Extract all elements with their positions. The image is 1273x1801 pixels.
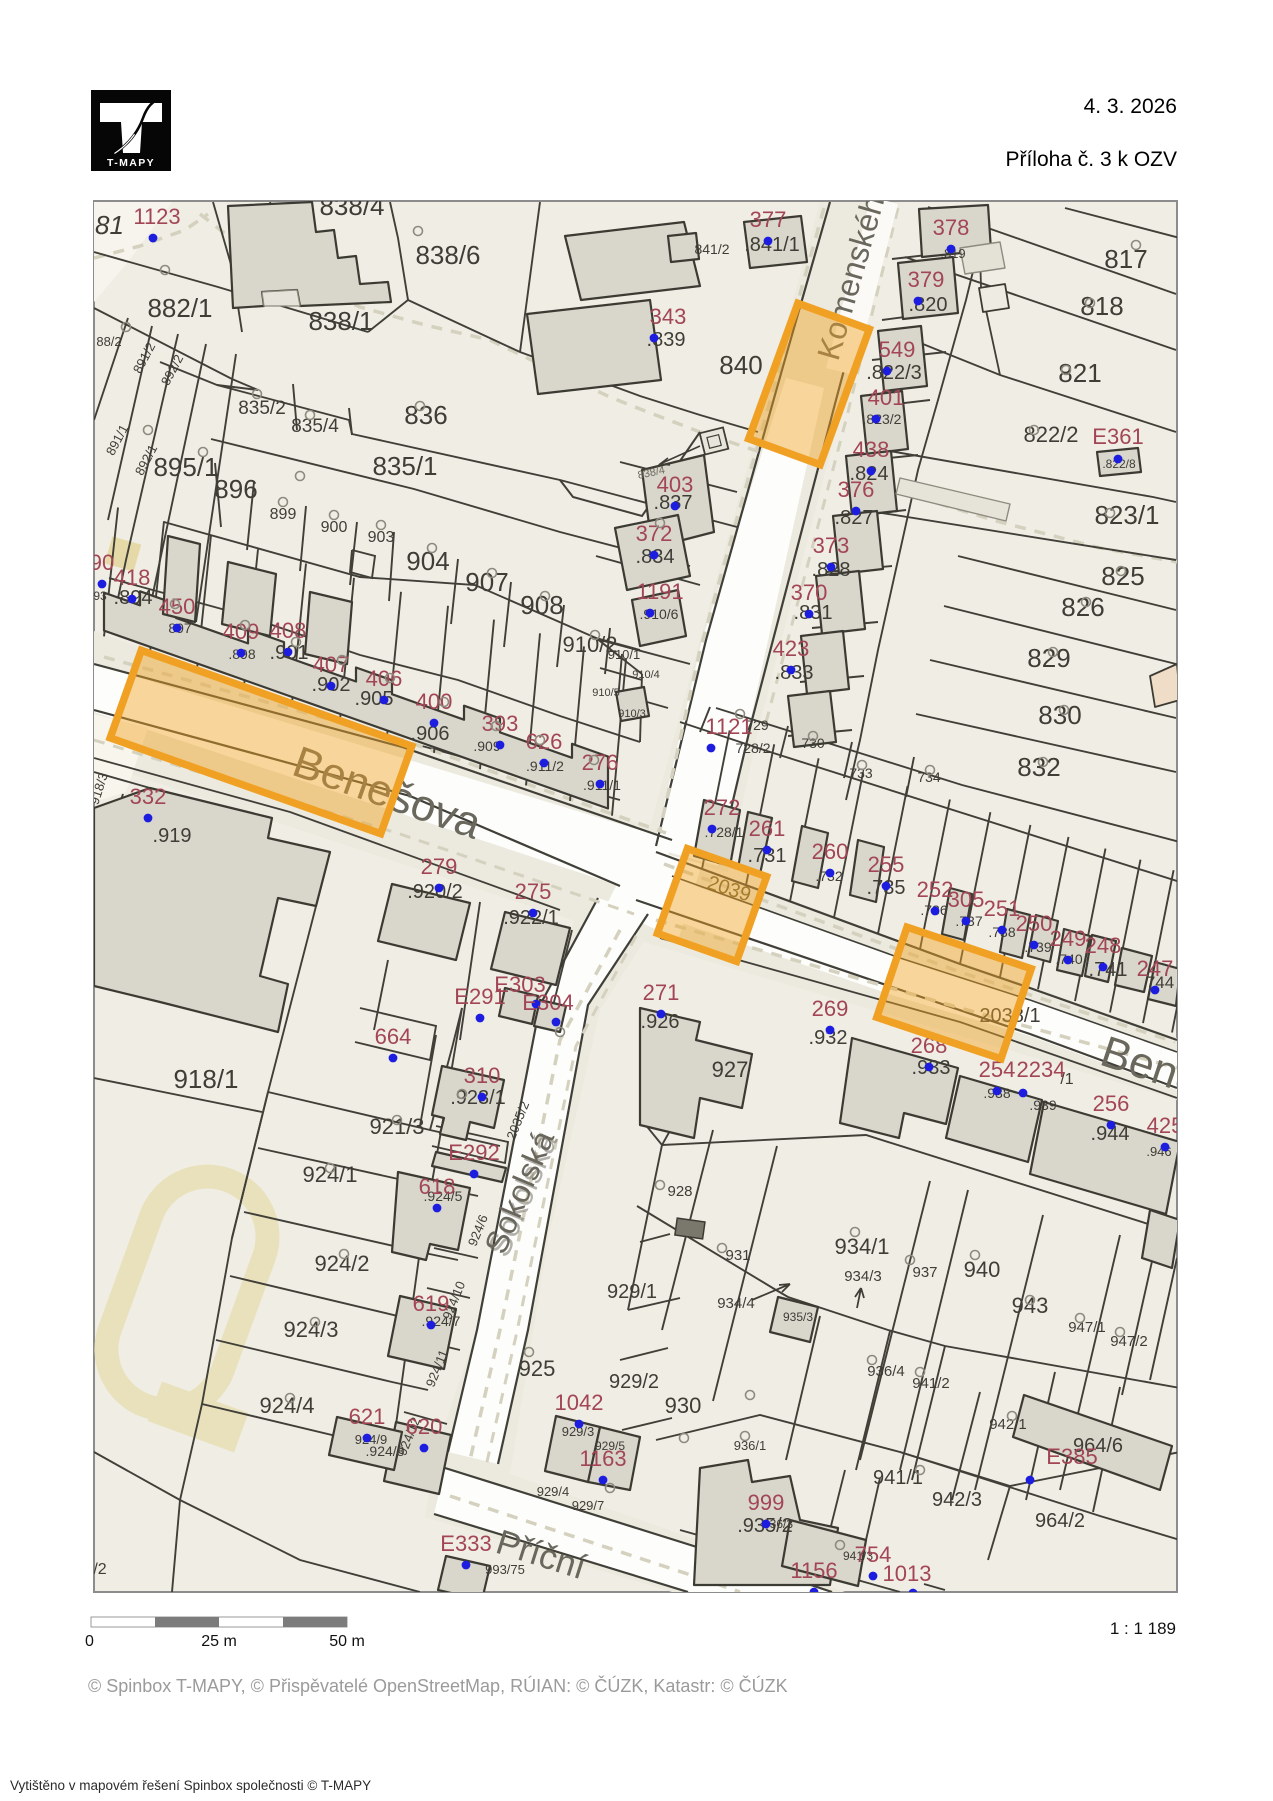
- svg-text:1121: 1121: [705, 714, 752, 739]
- svg-text:942/3: 942/3: [932, 1489, 982, 1511]
- svg-text:255: 255: [868, 852, 905, 877]
- svg-text:279: 279: [421, 854, 458, 879]
- svg-text:© Spinbox T-MAPY, © Přispěvate: © Spinbox T-MAPY, © Přispěvatelé OpenStr…: [88, 1675, 788, 1696]
- svg-text:.820: .820: [909, 294, 948, 316]
- svg-text:E385: E385: [1046, 1444, 1097, 1469]
- svg-text:408: 408: [270, 618, 307, 643]
- svg-text:276: 276: [582, 750, 619, 775]
- svg-text:840: 840: [719, 350, 762, 380]
- svg-text:250: 250: [1016, 911, 1053, 936]
- svg-text:619: 619: [413, 1291, 450, 1316]
- svg-text:1191: 1191: [636, 579, 683, 604]
- svg-text:248: 248: [1085, 933, 1122, 958]
- svg-text:924/4: 924/4: [259, 1393, 314, 1418]
- svg-text:Příloha č. 3 k OZV: Příloha č. 3 k OZV: [1005, 148, 1177, 171]
- svg-text:823/1: 823/1: [1094, 500, 1159, 530]
- svg-text:947/2: 947/2: [1110, 1333, 1148, 1350]
- svg-text:1013: 1013: [883, 1561, 932, 1586]
- svg-text:.741: .741: [1089, 959, 1128, 981]
- svg-text:88/2: 88/2: [96, 334, 121, 349]
- svg-text:927: 927: [712, 1057, 749, 1082]
- svg-text:.920/2: .920/2: [407, 881, 463, 903]
- svg-text:821: 821: [1058, 358, 1101, 388]
- svg-text:838/6: 838/6: [415, 240, 480, 270]
- svg-text:406: 406: [366, 666, 403, 691]
- svg-text:423: 423: [773, 636, 810, 661]
- svg-text:.910/6: .910/6: [640, 606, 679, 622]
- svg-text:275: 275: [515, 879, 552, 904]
- svg-text:.822/3: .822/3: [866, 362, 922, 384]
- svg-text:929/7: 929/7: [572, 1498, 605, 1513]
- svg-text:935/3: 935/3: [783, 1310, 813, 1324]
- svg-text:249: 249: [1050, 926, 1087, 951]
- svg-text:T-MAPY: T-MAPY: [107, 157, 155, 169]
- svg-text:910/4: 910/4: [632, 669, 660, 681]
- svg-text:830: 830: [1038, 700, 1081, 730]
- svg-text:1156: 1156: [790, 1558, 837, 1583]
- svg-text:734: 734: [917, 769, 941, 785]
- svg-text:947/1: 947/1: [1068, 1319, 1106, 1336]
- svg-text:373: 373: [813, 533, 850, 558]
- svg-text:940: 940: [964, 1257, 1001, 1282]
- svg-text:401: 401: [868, 385, 905, 410]
- svg-text:.906: .906: [411, 723, 450, 745]
- svg-text:Vytištěno v mapovém řešení Spi: Vytištěno v mapovém řešení Spinbox spole…: [10, 1778, 371, 1793]
- svg-text:379: 379: [908, 267, 945, 292]
- svg-text:924/2: 924/2: [314, 1251, 369, 1276]
- svg-text:908: 908: [520, 590, 563, 620]
- svg-text:621: 621: [349, 1404, 386, 1429]
- svg-text:.939: .939: [1029, 1097, 1056, 1113]
- svg-text:1 : 1 189: 1 : 1 189: [1110, 1619, 1176, 1638]
- svg-text:835/1: 835/1: [372, 451, 437, 481]
- svg-text:.919: .919: [153, 825, 192, 847]
- svg-text:.823/2: .823/2: [863, 411, 902, 427]
- svg-text:910/3: 910/3: [618, 708, 646, 720]
- svg-text:835/4: 835/4: [291, 416, 339, 437]
- svg-text:81: 81: [95, 210, 124, 240]
- svg-text:730: 730: [801, 735, 825, 751]
- svg-text:E333: E333: [440, 1531, 491, 1556]
- svg-text:261: 261: [749, 816, 786, 841]
- svg-text:25 m: 25 m: [201, 1633, 237, 1650]
- svg-text:929/2: 929/2: [609, 1371, 659, 1393]
- svg-text:999: 999: [748, 1490, 785, 1515]
- svg-text:343: 343: [650, 304, 687, 329]
- svg-text:370: 370: [791, 580, 828, 605]
- svg-text:817: 817: [1104, 244, 1147, 274]
- svg-text:/2: /2: [93, 1561, 106, 1578]
- svg-text:50 m: 50 m: [329, 1633, 365, 1650]
- svg-text:450: 450: [159, 594, 196, 619]
- svg-text:438: 438: [853, 437, 890, 462]
- svg-text:377: 377: [750, 207, 787, 232]
- svg-text:549: 549: [879, 337, 916, 362]
- svg-text:900: 900: [321, 519, 348, 536]
- svg-text:835/2: 835/2: [238, 398, 286, 419]
- svg-text:931: 931: [725, 1247, 750, 1264]
- svg-text:829: 829: [1027, 643, 1070, 673]
- svg-text:882/1: 882/1: [147, 293, 212, 323]
- svg-text:376: 376: [838, 477, 875, 502]
- svg-text:832: 832: [1017, 752, 1060, 782]
- svg-text:332: 332: [130, 784, 167, 809]
- svg-text:272: 272: [704, 795, 741, 820]
- svg-text:1163: 1163: [579, 1446, 626, 1471]
- svg-text:271: 271: [643, 980, 680, 1005]
- svg-text:836: 836: [404, 400, 447, 430]
- svg-text:0: 0: [85, 1633, 94, 1650]
- svg-text:E304: E304: [522, 990, 573, 1015]
- svg-text:400: 400: [416, 689, 453, 714]
- svg-text:928: 928: [667, 1183, 692, 1200]
- svg-text:620: 620: [406, 1414, 443, 1439]
- svg-text:934/4: 934/4: [717, 1295, 755, 1312]
- svg-text:896: 896: [214, 474, 257, 504]
- svg-text:838/1: 838/1: [308, 306, 373, 336]
- svg-text:418: 418: [114, 565, 151, 590]
- svg-text:.841/1: .841/1: [744, 234, 800, 256]
- svg-text:895/1: 895/1: [153, 452, 218, 482]
- svg-text:934/1: 934/1: [834, 1234, 889, 1259]
- svg-text:964/2: 964/2: [1035, 1510, 1085, 1532]
- svg-text:930: 930: [665, 1393, 702, 1418]
- svg-text:936/4: 936/4: [867, 1363, 905, 1380]
- svg-text:733: 733: [849, 765, 873, 781]
- svg-text:825: 825: [1101, 561, 1144, 591]
- svg-text:4. 3. 2026: 4. 3. 2026: [1084, 95, 1177, 118]
- svg-text:910/5: 910/5: [592, 687, 620, 699]
- svg-text:936/1: 936/1: [734, 1438, 767, 1453]
- svg-text:93: 93: [93, 589, 107, 603]
- svg-text:924/1: 924/1: [302, 1162, 357, 1187]
- svg-text:310: 310: [464, 1063, 501, 1088]
- svg-text:728/2: 728/2: [735, 740, 770, 756]
- svg-text:934/3: 934/3: [844, 1268, 882, 1285]
- svg-text:378: 378: [933, 215, 970, 240]
- svg-text:941/2: 941/2: [912, 1375, 950, 1392]
- svg-text:E292: E292: [448, 1140, 499, 1165]
- svg-text:929/4: 929/4: [537, 1484, 570, 1499]
- svg-text:918/1: 918/1: [173, 1064, 238, 1094]
- svg-text:841/2: 841/2: [694, 241, 729, 257]
- svg-text:305: 305: [948, 887, 985, 912]
- svg-text:929/1: 929/1: [607, 1281, 657, 1303]
- svg-text:.739: .739: [1024, 939, 1051, 955]
- svg-text:1123: 1123: [133, 204, 180, 229]
- svg-text:826: 826: [1061, 592, 1104, 622]
- svg-text:925: 925: [519, 1356, 556, 1381]
- svg-text:1042: 1042: [555, 1390, 604, 1415]
- svg-text:899: 899: [270, 506, 297, 523]
- svg-text:618: 618: [419, 1174, 456, 1199]
- svg-text:937: 937: [912, 1264, 937, 1281]
- svg-text:260: 260: [812, 839, 849, 864]
- svg-text:247: 247: [1137, 956, 1174, 981]
- svg-text:E361: E361: [1092, 424, 1143, 449]
- svg-text:372: 372: [636, 521, 673, 546]
- svg-text:921/3: 921/3: [369, 1114, 424, 1139]
- svg-text:2234: 2234: [1017, 1057, 1066, 1082]
- svg-text:910/1: 910/1: [608, 647, 641, 662]
- svg-text:943: 943: [1012, 1293, 1049, 1318]
- svg-text:664: 664: [375, 1024, 412, 1049]
- svg-text:903: 903: [368, 529, 395, 546]
- svg-text:269: 269: [812, 996, 849, 1021]
- svg-text:256: 256: [1093, 1091, 1130, 1116]
